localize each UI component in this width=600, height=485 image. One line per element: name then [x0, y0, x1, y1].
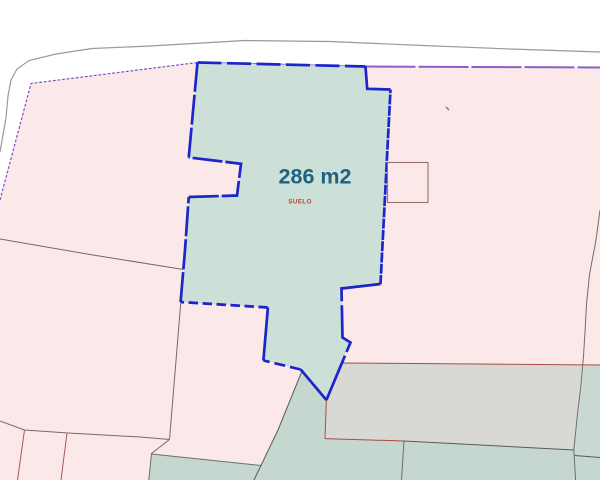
svg-text:286 m2: 286 m2	[279, 165, 352, 189]
svg-text:SUELO: SUELO	[288, 199, 312, 206]
